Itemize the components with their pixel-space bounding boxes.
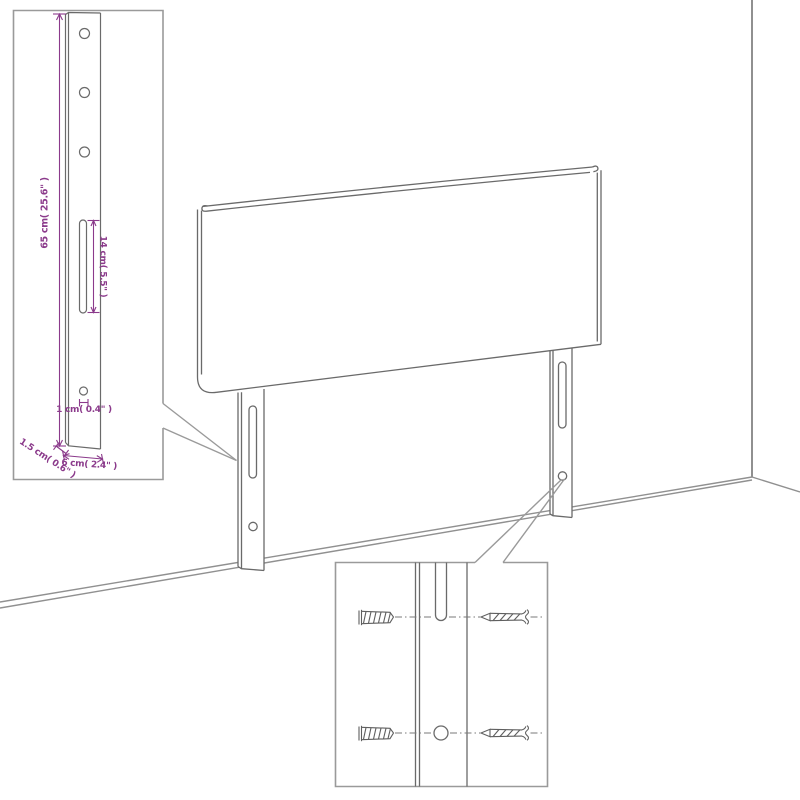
left-leg-slot — [249, 406, 257, 478]
inset-border — [336, 563, 548, 787]
headboard-right-leg — [550, 345, 572, 518]
floor-wall-edge-right — [752, 477, 800, 492]
headboard-assembly-diagram: 65 cm( 25.6" ) 14 cm( 5.5" ) 1 cm( 0.4" … — [0, 0, 800, 800]
right-leg-hole — [558, 472, 566, 480]
screw-detail-inset — [336, 479, 565, 787]
headboard-panel — [198, 166, 603, 394]
inset-leader-lines — [163, 404, 237, 461]
right-leg-slot — [559, 362, 567, 428]
dimension-label-1cm: 1 cm( 0.4" ) — [56, 405, 112, 415]
product-diagram: 65 cm( 25.6" ) 14 cm( 5.5" ) 1 cm( 0.4" … — [0, 0, 800, 800]
dimension-label-65cm: 65 cm( 25.6" ) — [40, 177, 51, 249]
left-leg-hole — [249, 522, 257, 530]
dimension-label-14cm: 14 cm( 5.5" ) — [98, 236, 108, 298]
headboard-left-leg — [238, 387, 264, 571]
